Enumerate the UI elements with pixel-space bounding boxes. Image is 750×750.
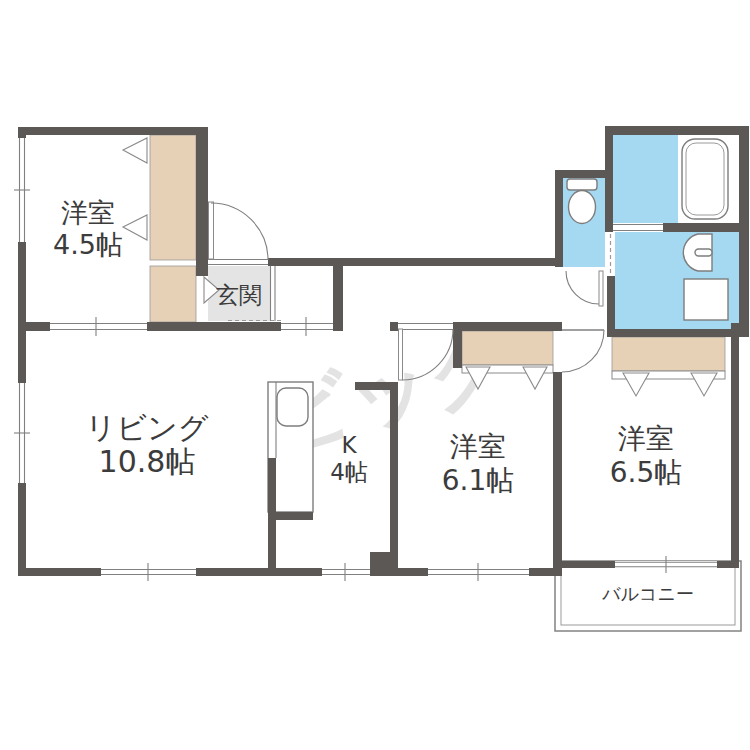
closet-room45-upper xyxy=(150,135,196,260)
opening-room61-door xyxy=(398,322,453,331)
opening-front-door xyxy=(208,258,268,266)
label-living-size: 10.8帖 xyxy=(99,444,196,479)
label-entrance: 玄関 xyxy=(216,282,262,308)
floor-plan-page: ビッグ xyxy=(0,0,750,750)
closet-room65 xyxy=(612,337,725,371)
label-balcony: バルコニー xyxy=(601,583,694,604)
washbasin-faucet-icon xyxy=(695,249,712,256)
label-room45-size: 4.5帖 xyxy=(53,229,123,260)
label-living-name: リビング xyxy=(86,410,209,445)
label-room65-name: 洋室 xyxy=(618,422,674,455)
label-room65-size: 6.5帖 xyxy=(610,456,683,489)
floor-plan-drawing: ビッグ xyxy=(0,0,750,750)
bathtub-icon xyxy=(682,139,728,219)
label-room61-size: 6.1帖 xyxy=(442,464,515,497)
opening-bath-door xyxy=(613,223,663,232)
washer-pan-icon xyxy=(684,279,728,320)
label-room61-name: 洋室 xyxy=(450,430,506,463)
label-kitchen-size: 4帖 xyxy=(330,459,368,485)
closet-room61 xyxy=(462,331,553,365)
closet-room45-lower xyxy=(150,266,196,322)
label-room45-name: 洋室 xyxy=(61,197,115,228)
kitchen-sink-icon xyxy=(277,388,308,426)
toilet-bowl-icon xyxy=(569,191,596,224)
label-kitchen-name: K xyxy=(341,432,357,458)
toilet-tank-icon xyxy=(567,179,597,190)
